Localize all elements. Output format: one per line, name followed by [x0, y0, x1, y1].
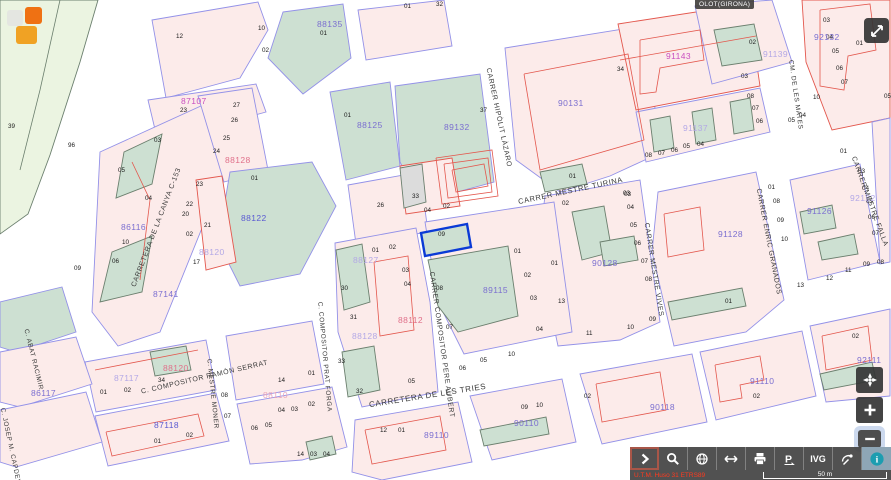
block-code-label: 92132 — [814, 32, 840, 42]
block-code-label: 92111 — [857, 355, 881, 365]
world-extent-button[interactable] — [688, 447, 717, 470]
map-label: 04 — [536, 326, 544, 333]
collapse-toolbar-button[interactable] — [630, 447, 659, 470]
map-label: 12 — [176, 33, 184, 40]
map-label: 06 — [671, 147, 679, 154]
block-code-label: 89115 — [483, 285, 508, 295]
selected-parcel-number: 09 — [438, 231, 446, 238]
map-label: 26 — [231, 117, 239, 124]
block-code-label: 86117 — [31, 388, 56, 398]
map-label: 06 — [459, 365, 467, 372]
block-code-label: 89132 — [444, 122, 470, 132]
map-label: 17 — [193, 259, 201, 266]
logo-square-amber — [16, 26, 37, 44]
map-label: 13 — [797, 282, 805, 289]
map-label: 06 — [836, 65, 844, 72]
map-label: 09 — [521, 404, 529, 411]
ivg-button-label: IVG — [810, 454, 826, 464]
pan-control-button[interactable] — [856, 367, 883, 393]
location-label: OLOT(GIRONA) — [695, 0, 754, 9]
map-label: 05 — [118, 167, 126, 174]
map-label: 08 — [747, 93, 755, 100]
block-code-label: 87107 — [181, 96, 207, 106]
map-label: 06 — [634, 240, 642, 247]
map-label: 01 — [251, 175, 259, 182]
double-arrow-icon — [723, 451, 739, 467]
block-code-label: 90131 — [558, 98, 584, 108]
map-label: 26 — [377, 202, 385, 209]
chevron-right-icon — [637, 451, 653, 467]
map-label: 05 — [480, 357, 488, 364]
map-label: 01 — [100, 389, 108, 396]
map-label: 23 — [196, 181, 204, 188]
map-label: 12 — [380, 427, 388, 434]
globe-icon — [694, 451, 710, 467]
map-label: 05 — [265, 422, 273, 429]
info-button[interactable]: i — [862, 447, 891, 470]
map-label: 21 — [204, 222, 212, 229]
map-label: 08 — [773, 198, 781, 205]
minus-icon — [863, 432, 877, 446]
map-label: 09 — [863, 261, 871, 268]
map-label: 24 — [213, 148, 221, 155]
map-label: 07 — [224, 413, 232, 420]
scale-bar: 50 m — [763, 472, 887, 479]
bottom-info-bar: U.T.M. Huso 31 ETRS89 50 m — [630, 470, 891, 480]
map-label: 25 — [223, 135, 231, 142]
map-label: 02 — [584, 393, 592, 400]
map-label: 01 — [840, 148, 848, 155]
fullscreen-button[interactable] — [864, 18, 889, 43]
map-label: 02 — [443, 203, 451, 210]
map-label: 04 — [404, 281, 412, 288]
point-tool-button[interactable]: P — [775, 447, 804, 470]
map-label: 06 — [251, 425, 259, 432]
map-label: 02 — [753, 393, 761, 400]
map-label: 02 — [262, 47, 270, 54]
zoom-search-button[interactable] — [659, 447, 688, 470]
map-label: 10 — [508, 351, 516, 358]
map-label: 10 — [258, 25, 266, 32]
map-block-parcel[interactable] — [730, 98, 754, 134]
map-label: 06 — [756, 118, 764, 125]
map-label: 01 — [768, 184, 776, 191]
block-code-label: 91139 — [763, 49, 788, 59]
map-label: 01 — [320, 30, 328, 37]
block-code-label: 90128 — [592, 258, 618, 268]
block-code-label: 87141 — [153, 289, 179, 299]
map-label: 22 — [186, 201, 194, 208]
block-code-label: 88120 — [163, 363, 189, 373]
map-label: 09 — [777, 217, 785, 224]
map-label: 03 — [402, 267, 410, 274]
map-label: 08 — [221, 392, 229, 399]
block-code-label: 88127 — [353, 255, 379, 265]
block-code-label: 88128 — [352, 331, 378, 341]
logo-square-gray — [7, 10, 23, 26]
map-label: 13 — [558, 298, 566, 305]
map-label: 07 — [752, 105, 760, 112]
block-code-label: 88125 — [357, 120, 383, 130]
move-star-icon — [862, 372, 878, 388]
map-label: 01 — [404, 3, 412, 10]
block-code-label: 88110 — [263, 390, 288, 400]
map-label: 02 — [186, 231, 194, 238]
map-label: 96 — [68, 142, 76, 149]
block-code-label: 88135 — [317, 19, 343, 29]
map-label: 33 — [338, 358, 346, 365]
sec-logo — [4, 4, 48, 48]
map-label: 01 — [398, 427, 406, 434]
scale-label: 50 m — [818, 472, 832, 478]
map-label: 10 — [627, 324, 635, 331]
logo-square-orange — [25, 7, 42, 24]
map-label: 10 — [122, 239, 130, 246]
block-code-label: 87117 — [114, 373, 139, 383]
bottom-toolbar: PIVGi — [630, 447, 891, 470]
map-label: 01 — [344, 112, 352, 119]
zoom-in-button[interactable] — [856, 397, 883, 423]
map-label: 04 — [697, 141, 705, 148]
printer-icon — [752, 451, 768, 467]
magnifier-icon — [665, 451, 681, 467]
map-label: 11 — [845, 267, 852, 274]
map-label: 03 — [741, 73, 749, 80]
map-label: 01 — [514, 248, 522, 255]
block-code-label: 88120 — [199, 247, 225, 257]
map-label: 05 — [832, 48, 840, 55]
block-code-label: 90110 — [514, 418, 539, 428]
map-label: 02 — [186, 432, 194, 439]
map-label: 03 — [154, 137, 162, 144]
map-label: 12 — [826, 275, 834, 282]
map-label: 05 — [408, 378, 416, 385]
map-label: 08 — [877, 259, 885, 266]
map-label: 02 — [749, 39, 757, 46]
map-label: 02 — [852, 333, 860, 340]
cadastral-map[interactable]: 1210020123030504100609963927262524232220… — [0, 0, 891, 480]
block-code-label: 88128 — [225, 155, 251, 165]
info-icon: i — [869, 451, 885, 467]
expand-icon — [869, 23, 885, 39]
map-label: 03 — [291, 406, 299, 413]
map-label: 02 — [562, 200, 570, 207]
map-label: 01 — [551, 260, 559, 267]
map-label: 07 — [641, 258, 649, 265]
map-label: 27 — [233, 102, 241, 109]
photo-layer-button[interactable] — [833, 447, 862, 470]
block-code-label: 91137 — [683, 123, 708, 133]
map-block-parcel[interactable] — [400, 164, 426, 208]
map-label: 09 — [74, 265, 82, 272]
map-label: 32 — [436, 1, 444, 8]
map-label: 08 — [645, 152, 653, 159]
map-label: 10 — [781, 236, 789, 243]
map-label: 03 — [310, 451, 318, 458]
block-code-label: 91126 — [807, 206, 832, 216]
map-label: 30 — [341, 285, 349, 292]
ivg-button[interactable]: IVG — [804, 447, 833, 470]
map-label: 01 — [569, 173, 577, 180]
map-label: 05 — [630, 222, 638, 229]
flag-p-icon: P — [781, 451, 797, 467]
block-code-label: 91143 — [666, 51, 691, 61]
utm-reference-label: U.T.M. Huso 31 ETRS89 — [630, 472, 763, 479]
map-label: 04 — [424, 207, 432, 214]
block-code-label: 91110 — [750, 376, 774, 386]
map-label: 20 — [182, 211, 190, 218]
map-label: 10 — [536, 402, 544, 409]
map-label: 02 — [308, 401, 316, 408]
block-code-label: 88122 — [241, 213, 267, 223]
map-label: 33 — [412, 193, 420, 200]
map-label: 04 — [145, 195, 153, 202]
map-label: 07 — [658, 150, 666, 157]
map-label: 03 — [623, 190, 631, 197]
svg-text:i: i — [875, 455, 878, 465]
map-label: 11 — [586, 330, 593, 337]
map-label: 04 — [323, 451, 331, 458]
map-label: 14 — [278, 377, 286, 384]
map-label: 37 — [480, 107, 488, 114]
map-label: 23 — [180, 107, 188, 114]
map-label: 05 — [788, 117, 796, 124]
map-label: 02 — [524, 272, 532, 279]
map-label: 01 — [308, 370, 316, 377]
block-code-label: 88112 — [398, 315, 423, 325]
map-label: 31 — [350, 314, 358, 321]
map-label: 32 — [356, 388, 364, 395]
map-label: 07 — [841, 79, 849, 86]
block-code-label: 87118 — [154, 420, 179, 430]
map-label: 14 — [297, 451, 305, 458]
map-label: 02 — [389, 244, 397, 251]
map-label: 01 — [856, 40, 864, 47]
print-button[interactable] — [746, 447, 775, 470]
catastro-map-viewer: 1210020123030504100609963927262524232220… — [0, 0, 891, 480]
map-label: 05 — [884, 93, 891, 100]
block-code-label: 89110 — [424, 430, 449, 440]
svg-text:P: P — [785, 453, 792, 465]
block-code-label: 86116 — [121, 222, 146, 232]
map-label: 01 — [725, 298, 733, 305]
map-label: 01 — [372, 247, 380, 254]
map-label: 02 — [124, 387, 132, 394]
map-label: 07 — [446, 324, 454, 331]
map-label: 10 — [813, 94, 821, 101]
map-label: 39 — [8, 123, 16, 130]
map-label: 01 — [154, 438, 162, 445]
block-code-label: 91128 — [718, 229, 743, 239]
dish-icon — [839, 451, 855, 467]
map-label: 04 — [278, 407, 286, 414]
map-label: 03 — [823, 17, 831, 24]
map-label: 05 — [683, 143, 691, 150]
pan-tool-button[interactable] — [717, 447, 746, 470]
map-label: 34 — [617, 66, 625, 73]
map-label: 04 — [627, 204, 635, 211]
map-label: 09 — [649, 316, 657, 323]
map-label: 03 — [530, 295, 538, 302]
plus-icon — [862, 402, 878, 418]
map-label: 06 — [112, 258, 120, 265]
block-code-label: 90118 — [650, 402, 675, 412]
